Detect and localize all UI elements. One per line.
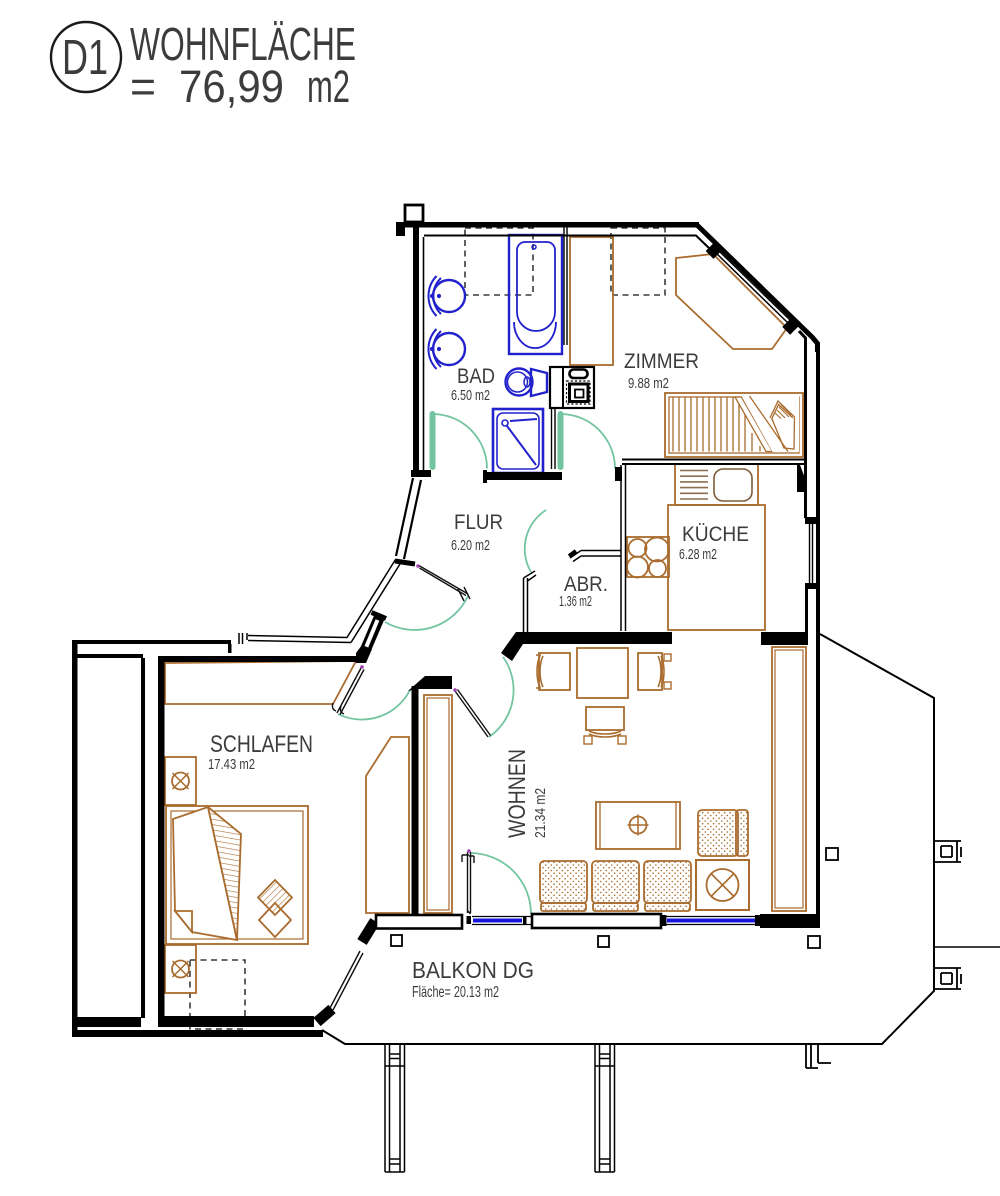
svg-text:76,99: 76,99: [179, 61, 284, 112]
svg-text:1.36 m2: 1.36 m2: [559, 593, 592, 610]
svg-text:BAD: BAD: [457, 365, 495, 388]
svg-text:WOHNEN: WOHNEN: [504, 749, 531, 838]
svg-text:21.34 m2: 21.34 m2: [532, 788, 549, 838]
svg-text:17.43 m2: 17.43 m2: [208, 756, 255, 773]
svg-text:=: =: [130, 61, 156, 112]
svg-text:D1: D1: [62, 31, 108, 85]
svg-text:KÜCHE: KÜCHE: [682, 523, 749, 546]
svg-text:9.88 m2: 9.88 m2: [628, 375, 669, 392]
svg-text:6.50 m2: 6.50 m2: [451, 387, 490, 404]
svg-text:6.20 m2: 6.20 m2: [451, 537, 490, 554]
svg-text:Fläche= 20.13 m2: Fläche= 20.13 m2: [412, 984, 499, 1001]
svg-text:BALKON DG: BALKON DG: [412, 957, 534, 983]
svg-text:6.28 m2: 6.28 m2: [679, 546, 717, 563]
svg-text:SCHLAFEN: SCHLAFEN: [210, 731, 313, 758]
svg-text:FLUR: FLUR: [454, 511, 503, 534]
svg-text:m2: m2: [307, 61, 350, 112]
svg-text:ZIMMER: ZIMMER: [624, 350, 699, 373]
